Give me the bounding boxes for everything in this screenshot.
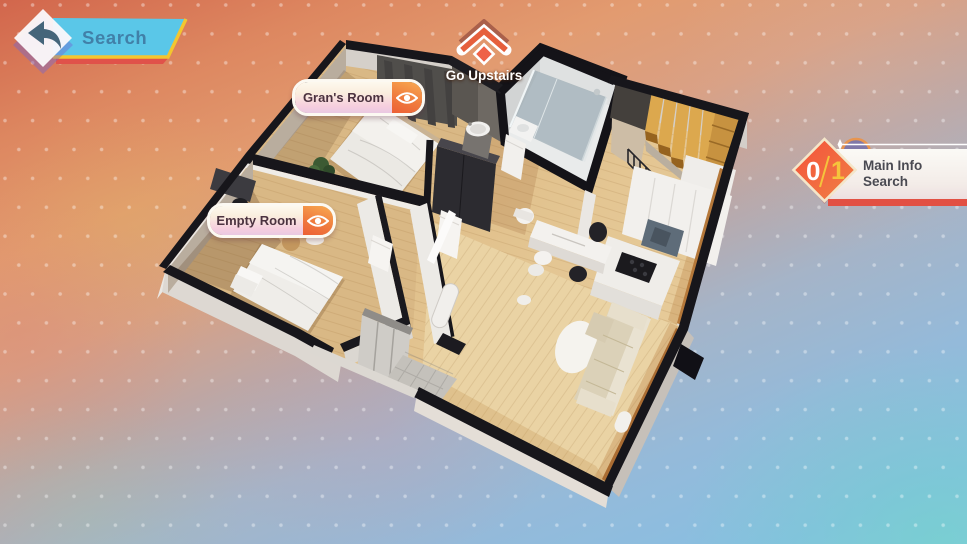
svg-text:0: 0 <box>806 156 820 186</box>
svg-text:1: 1 <box>831 157 845 185</box>
svg-text:Main Info: Main Info <box>863 158 922 173</box>
svg-text:Search: Search <box>863 174 908 189</box>
svg-text:Search: Search <box>82 27 147 48</box>
